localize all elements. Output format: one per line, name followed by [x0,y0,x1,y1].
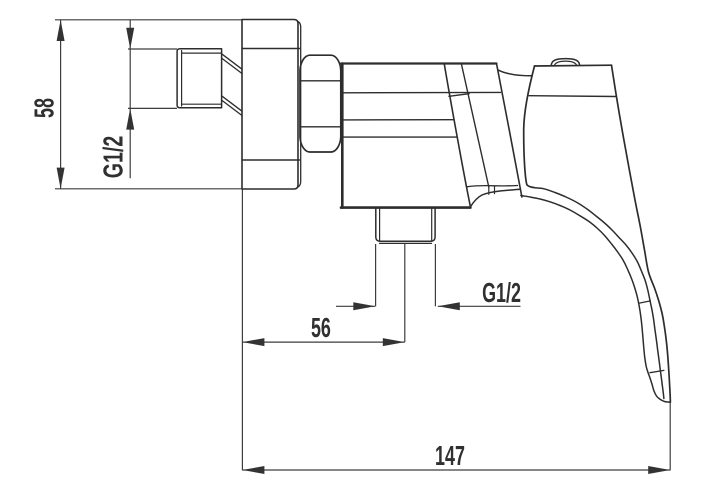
svg-text:G1/2: G1/2 [98,136,129,178]
svg-text:147: 147 [435,440,465,471]
svg-text:58: 58 [29,98,60,118]
svg-text:56: 56 [311,312,331,343]
svg-text:G1/2: G1/2 [482,277,521,308]
